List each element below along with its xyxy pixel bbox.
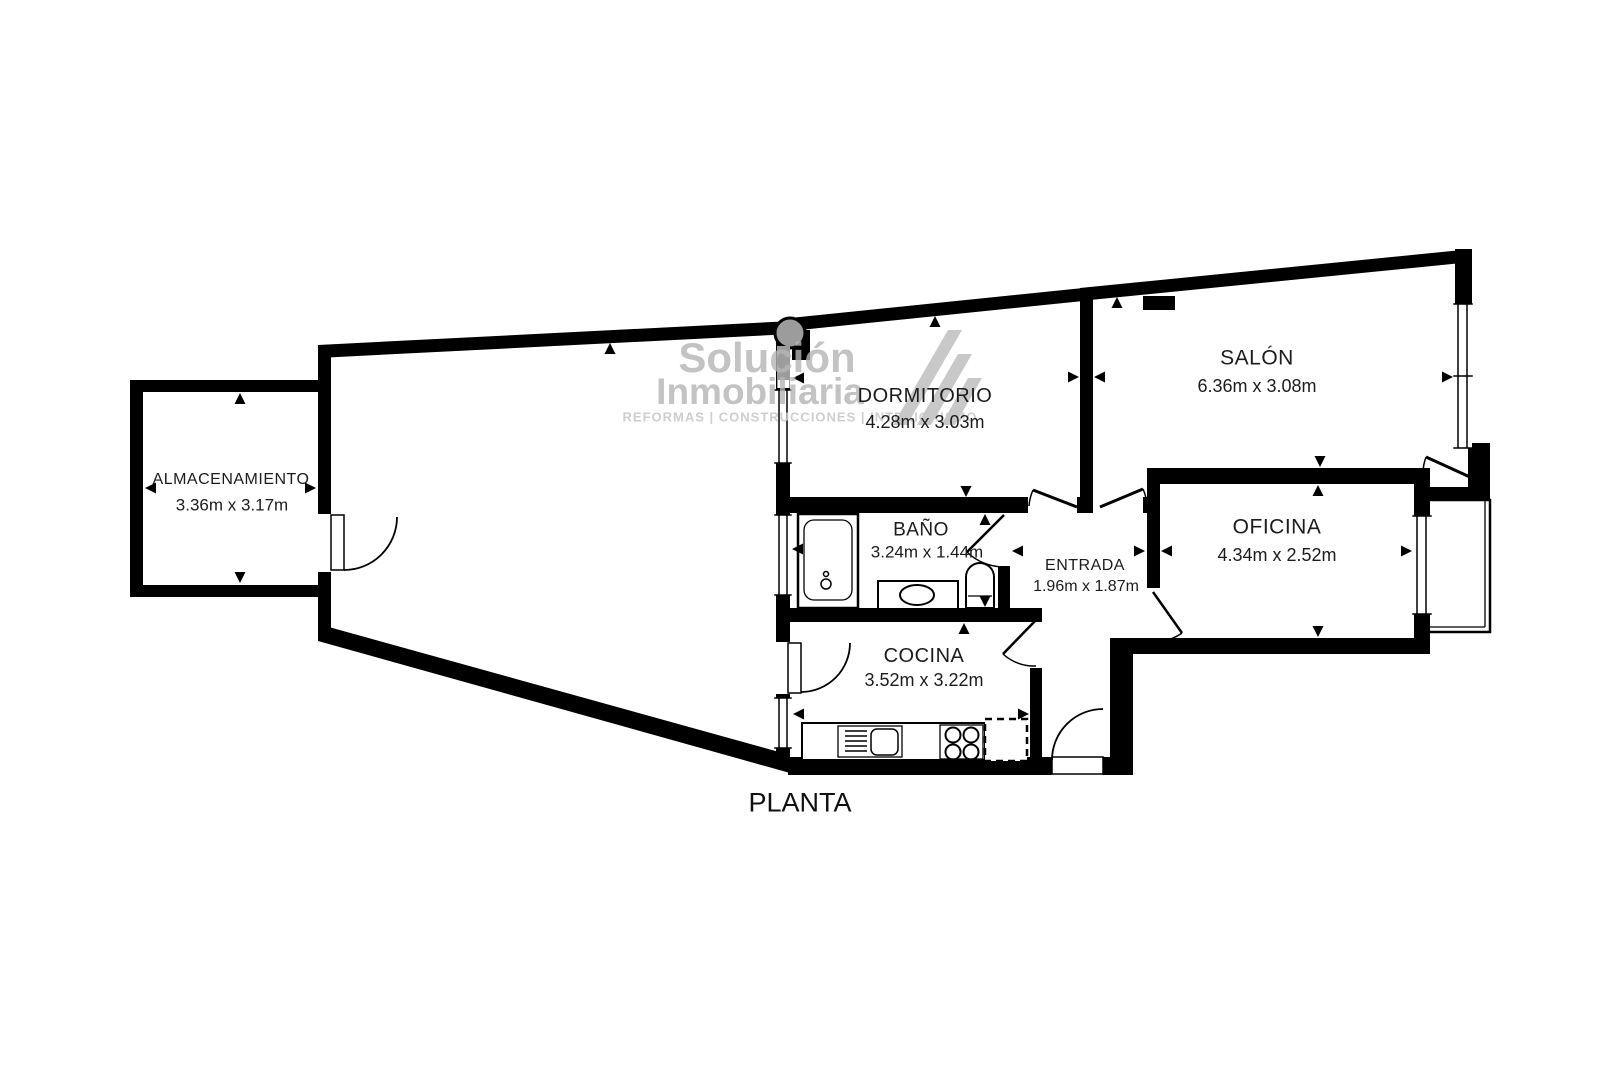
salon-dimensions: 6.36m x 3.08m [1197,377,1316,397]
appliance-dashed-icon [985,719,1027,761]
entrance-door-icon [1052,709,1103,774]
almacenamiento-dimensions: 3.36m x 3.17m [176,497,288,516]
stove-icon [940,725,983,760]
balcony-door-icon [1423,457,1470,477]
salon-door-icon [1100,489,1147,507]
cocina-window-icon [775,698,791,748]
floor-plan: Solución Inmobiliaria REFORMAS | CONSTRU… [0,0,1600,1067]
bathtub-icon [798,514,858,608]
oficina-dimensions: 4.34m x 2.52m [1217,546,1336,566]
oficina-label: OFICINA [1233,515,1322,538]
balcony [1430,500,1490,632]
cocina-label: COCINA [884,645,965,667]
wall-openings [318,514,790,694]
dormitorio-label: DORMITORIO [858,385,993,407]
bano-window-icon [775,515,791,595]
cocina-bigroom-door-icon [788,643,850,693]
bano-label: BAÑO [893,521,949,542]
entrada-dimensions: 1.96m x 1.87m [1033,578,1139,596]
bathroom-sink-icon [878,581,958,609]
oficina-window-icon [1413,516,1431,614]
cocina-dimensions: 3.52m x 3.22m [864,671,983,691]
page-title: PLANTA [748,788,851,819]
dormitorio-door-icon [1029,490,1077,507]
salon-window-icon [1454,304,1472,448]
toilet-icon [966,563,994,608]
oficina-door-icon [1153,592,1182,642]
floor-plan-drawing [0,0,1600,1067]
dormitorio-dimensions: 4.28m x 3.03m [865,413,984,433]
walls [130,249,1490,775]
entrada-label: ENTRADA [1045,557,1125,575]
cocina-corridor-door-icon [1003,620,1036,666]
bano-dimensions: 3.24m x 1.44m [871,544,983,563]
almacenamiento-door-icon [331,515,397,570]
kitchen-sink-icon [838,726,902,757]
salon-label: SALÓN [1220,346,1294,369]
watermark-brand-line2: Inmobiliaria [656,371,864,413]
almacenamiento-label: ALMACENAMIENTO [153,471,310,489]
